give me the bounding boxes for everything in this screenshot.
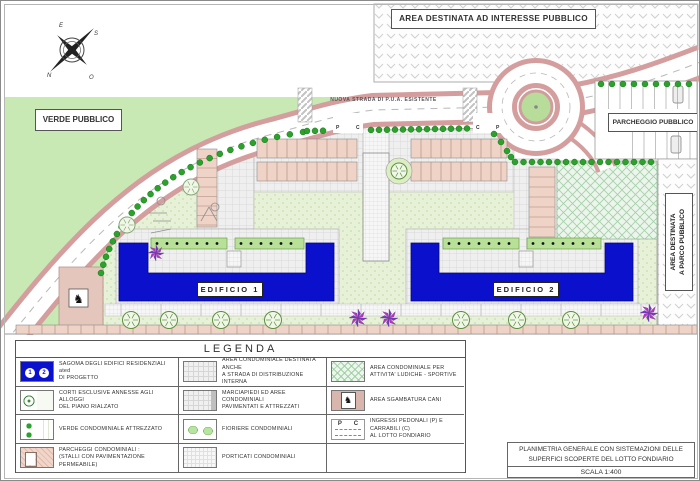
- sports-area: [557, 163, 657, 239]
- label-area-parco-pubblico: AREA DESTINATA A PARCO PUBBLICO: [665, 193, 693, 291]
- entrance-p: P: [338, 421, 342, 427]
- entrance-marker-p: P: [496, 125, 499, 131]
- legend-item-corti-esclusive: CORTI ESCLUSIVE ANNESSE AGLI ALLOGGI DEL…: [16, 387, 179, 416]
- legend-item-sagoma-edifici: 1 2 SAGOMA DEGLI EDIFICI RESIDENZIALI at…: [16, 358, 179, 387]
- dog-icon: ♞: [73, 292, 84, 306]
- drawing-title-line1: PLANIMETRIA GENERALE CON SISTEMAZIONI DE…: [509, 445, 693, 455]
- sidewalk-swatch: [183, 390, 217, 411]
- building-swatch: 1 2: [20, 361, 54, 382]
- legend-item-ingressi: P C INGRESSI PEDONALI (P) E CARRABILI (C…: [327, 415, 464, 444]
- compass-e: E: [59, 23, 64, 29]
- legend-text: AREA CONDOMINIALE PER: [370, 365, 457, 372]
- label-verde-pubblico: VERDE PUBBLICO: [35, 109, 122, 131]
- legend-item-marciapiedi: MARCIAPIEDI ED AREE CONDOMINIALI PAVIMEN…: [179, 387, 327, 416]
- label-area-interesse-pubblico: AREA DESTINATA AD INTERESSE PUBBLICO: [391, 9, 596, 29]
- label-parco-line1: AREA DESTINATA: [670, 213, 679, 270]
- compass-o: O: [89, 75, 94, 81]
- legend-item-empty: [327, 444, 464, 473]
- legend-text: AREA CONDOMINIALE DESTINATA ANCHE: [222, 358, 322, 372]
- sports-area-swatch: [331, 361, 365, 382]
- legend-text: DEL PIANO RIALZATO: [59, 404, 174, 411]
- dog-area: ♞: [59, 267, 103, 327]
- legend-text: MARCIAPIEDI ED AREE CONDOMINIALI: [222, 390, 322, 405]
- car-icon: [671, 136, 681, 153]
- legend-text: VERDE CONDOMINIALE ATTREZZATO: [59, 426, 162, 433]
- green-swatch: [20, 419, 54, 440]
- portico-swatch: [183, 447, 217, 468]
- dog-area-swatch: ♞: [331, 390, 365, 411]
- entrance-marker-c: C: [476, 125, 480, 131]
- label-edificio-2: EDIFICIO 2: [493, 282, 559, 297]
- drawing-scale: SCALA 1:400: [508, 467, 694, 477]
- parking-swatch: [20, 447, 54, 468]
- legend-text: PORTICATI CONDOMINIALI: [222, 454, 296, 461]
- site-plan-page: ♞ E S N O AREA DESTINATA AD INTERESSE PU…: [0, 0, 700, 481]
- internal-road-swatch: [183, 361, 217, 382]
- legend-text: PAVIMENTATI E ATTREZZATI: [222, 404, 322, 411]
- legend-text: SAGOMA DEGLI EDIFICI RESIDENZIALI: [59, 361, 166, 368]
- label-strada: NUOVA STRADA DI P.U.A. ESISTENTE: [291, 97, 476, 103]
- compass-rose: E S N O: [39, 17, 105, 83]
- legend-text: AL LOTTO FONDIARIO: [370, 433, 460, 440]
- legend-item-sgambatura-cani: ♞ AREA SGAMBATURA CANI: [327, 387, 464, 416]
- legend-text: A STRADA DI DISTRIBUZIONE INTERNA: [222, 372, 322, 387]
- legend-item-parcheggi: PARCHEGGI CONDOMINIALI : (STALLI CON PAV…: [16, 444, 179, 473]
- site-plan-drawing: ♞: [1, 1, 700, 335]
- planter-swatch: [183, 419, 217, 440]
- label-parcheggio-pubblico: PARCHEGGIO PUBBLICO: [608, 113, 698, 132]
- label-parco-line2: A PARCO PUBBLICO: [679, 209, 688, 275]
- legend: LEGENDA 1 2 SAGOMA DEGLI EDIFICI RESIDEN…: [15, 340, 466, 473]
- building-2-marker: 2: [39, 368, 49, 378]
- compass-n: N: [47, 73, 52, 79]
- entrance-swatch: P C: [331, 419, 365, 440]
- car-icon: [673, 86, 683, 103]
- legend-text: DI PROGETTO: [59, 375, 166, 382]
- entrance-c: C: [354, 421, 358, 427]
- label-edificio-1: EDIFICIO 1: [197, 282, 263, 297]
- legend-text: INGRESSI PEDONALI (P) E CARRABILI (C): [370, 418, 460, 433]
- drawing-title-line2: SUPERFICI SCOPERTE DEL LOTTO FONDIARIO: [509, 455, 693, 465]
- dog-icon: ♞: [341, 392, 356, 409]
- title-block: PLANIMETRIA GENERALE CON SISTEMAZIONI DE…: [507, 442, 695, 478]
- legend-text: FIORIERE CONDOMINIALI: [222, 426, 293, 433]
- legend-item-fioriere: FIORIERE CONDOMINIALI: [179, 415, 327, 444]
- legend-title: LEGENDA: [16, 341, 465, 358]
- entrance-marker-c: C: [356, 125, 360, 131]
- building-1-marker: 1: [25, 368, 35, 378]
- legend-item-area-ludiche: AREA CONDOMINIALE PER ATTIVITA' LUDICHE …: [327, 358, 464, 387]
- central-porticato: [363, 153, 389, 261]
- courtyard-swatch: [20, 390, 54, 411]
- legend-text: (STALLI CON PAVIMENTAZIONE PERMEABILE): [59, 454, 174, 469]
- legend-item-verde-condominiale: VERDE CONDOMINIALE ATTREZZATO: [16, 415, 179, 444]
- legend-item-area-strada-interna: AREA CONDOMINIALE DESTINATA ANCHE A STRA…: [179, 358, 327, 387]
- compass-s: S: [94, 31, 98, 37]
- entrance-marker-p: P: [336, 125, 339, 131]
- legend-item-porticati: PORTICATI CONDOMINIALI: [179, 444, 327, 473]
- legend-text: PARCHEGGI CONDOMINIALI :: [59, 447, 174, 454]
- legend-text: AREA SGAMBATURA CANI: [370, 397, 441, 404]
- legend-text: CORTI ESCLUSIVE ANNESSE AGLI ALLOGGI: [59, 390, 174, 405]
- legend-text: ATTIVITA' LUDICHE - SPORTIVE: [370, 372, 457, 379]
